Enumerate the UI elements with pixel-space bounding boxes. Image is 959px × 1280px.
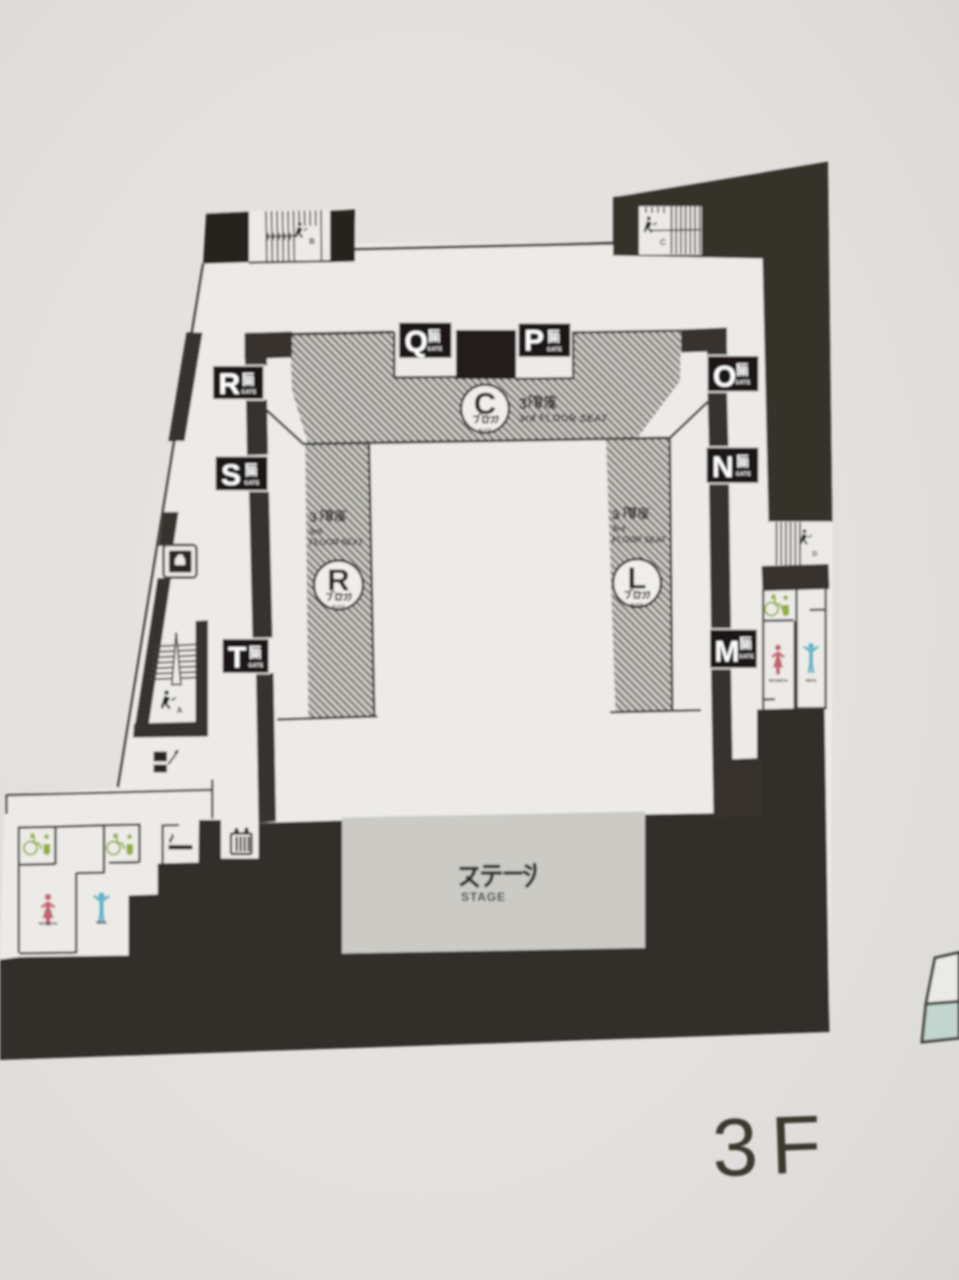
svg-text:A: A — [177, 705, 183, 715]
svg-text:FLOOR SEAT: FLOOR SEAT — [612, 535, 667, 545]
svg-text:BLOCK: BLOCK — [332, 605, 345, 609]
svg-text:Q: Q — [405, 326, 428, 359]
svg-text:WOMEN: WOMEN — [39, 921, 58, 927]
svg-text:GATE: GATE — [242, 390, 257, 396]
svg-text:N: N — [712, 451, 734, 484]
svg-text:GATE: GATE — [547, 347, 562, 353]
svg-text:GATE: GATE — [736, 472, 751, 478]
svg-text:GATE: GATE — [739, 654, 754, 660]
svg-text:GATE: GATE — [245, 480, 260, 486]
svg-text:R: R — [219, 368, 241, 401]
svg-text:GATE: GATE — [249, 663, 264, 669]
svg-text:3rd: 3rd — [612, 524, 625, 534]
svg-text:3F: 3F — [711, 1099, 836, 1194]
svg-text:3rd: 3rd — [309, 526, 322, 536]
svg-text:MEN: MEN — [96, 920, 107, 926]
svg-text:C: C — [660, 238, 666, 247]
svg-text:R: R — [327, 563, 349, 598]
svg-text:BLOCK: BLOCK — [479, 428, 492, 432]
svg-text:3: 3 — [309, 509, 317, 525]
svg-text:P: P — [524, 325, 544, 358]
svg-text:GATE: GATE — [736, 380, 751, 386]
svg-text:M: M — [715, 636, 740, 669]
svg-text:BLOCK: BLOCK — [631, 603, 644, 607]
svg-text:WOMEN: WOMEN — [769, 678, 788, 684]
svg-text:T: T — [228, 641, 246, 674]
svg-text:MEN: MEN — [806, 678, 817, 684]
svg-text:FLOOR SEAT: FLOOR SEAT — [309, 537, 364, 547]
svg-text:O: O — [713, 360, 736, 393]
svg-text:3: 3 — [519, 396, 528, 413]
svg-text:3: 3 — [612, 507, 620, 523]
svg-text:3rd FLOOR SEAT: 3rd FLOOR SEAT — [519, 414, 608, 425]
svg-text:B: B — [309, 237, 315, 246]
svg-text:STAGE: STAGE — [461, 890, 506, 904]
svg-text:D: D — [812, 549, 818, 558]
svg-text:GATE: GATE — [428, 347, 443, 353]
svg-text:S: S — [221, 459, 241, 492]
